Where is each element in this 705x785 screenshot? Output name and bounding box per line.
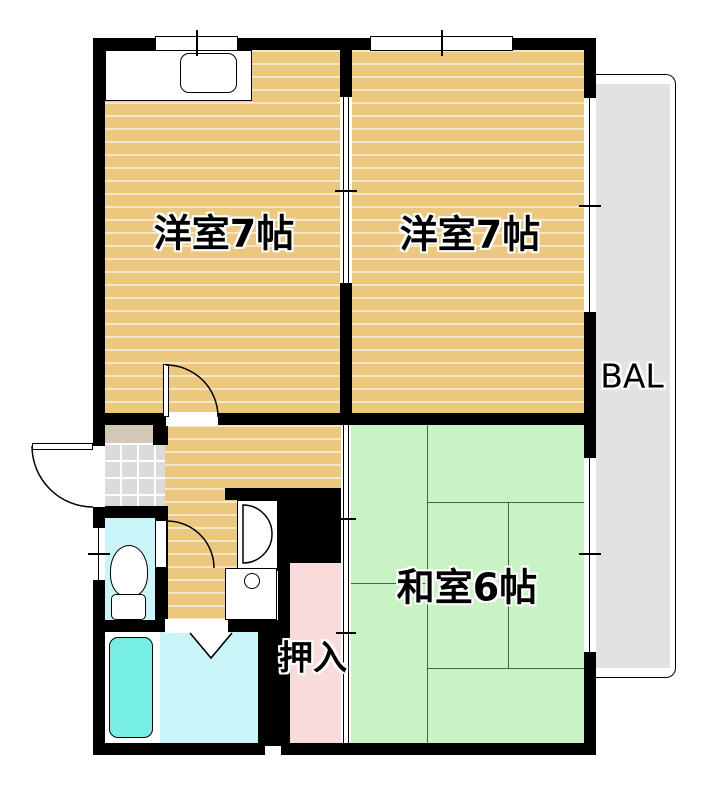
hallway-floor-upper (165, 425, 341, 488)
window-tick (579, 553, 601, 555)
japanese-room-label: 和室6帖 (397, 557, 537, 612)
toilet-tank (111, 594, 146, 620)
entrance-door-leaf (32, 443, 93, 450)
window-tick (441, 30, 443, 56)
entrance-tiles (103, 443, 165, 506)
sliding-door-tick (336, 518, 356, 520)
entrance-door-swing-arc (32, 446, 93, 507)
drain-icon (244, 573, 260, 589)
wall-notch (265, 746, 281, 755)
bedroom-door-opening (166, 412, 218, 426)
balcony-label: BAL (600, 357, 664, 396)
bedroom-right-label: 洋室7帖 (400, 204, 540, 259)
bathtub (109, 637, 153, 738)
sliding-door-line (348, 425, 349, 743)
tatami-line (427, 502, 584, 503)
toilet-door-leaf (155, 520, 167, 568)
closet-label: 押入 (279, 631, 347, 680)
window-tick (579, 205, 601, 207)
window-tick (88, 553, 110, 555)
window-tick (335, 190, 357, 192)
washbasin-unit (237, 500, 278, 571)
bedroom-left-label: 洋室7帖 (154, 203, 294, 258)
wall-entrance-stub (153, 425, 168, 445)
storage-unit (180, 53, 237, 93)
bathroom-floor (160, 632, 258, 743)
tatami-line (427, 668, 584, 669)
bedroom-door-leaf (163, 364, 169, 417)
window-line (589, 458, 590, 652)
floor-plan: 洋室7帖 洋室7帖 和室6帖 押入 BAL (0, 0, 705, 785)
faucet-icon (258, 529, 266, 537)
toilet-bowl (110, 545, 148, 597)
wall-closet-left (278, 563, 290, 620)
sliding-door-line (343, 425, 344, 743)
pipe-shaft (278, 488, 341, 563)
window-tick (196, 30, 198, 56)
bathroom-door-opening (165, 619, 228, 633)
wall-left (93, 38, 105, 755)
entrance-door-opening (93, 446, 105, 507)
wall-bottom (93, 743, 596, 755)
entrance-step (103, 425, 155, 443)
wall-washbasin-top (225, 488, 278, 500)
